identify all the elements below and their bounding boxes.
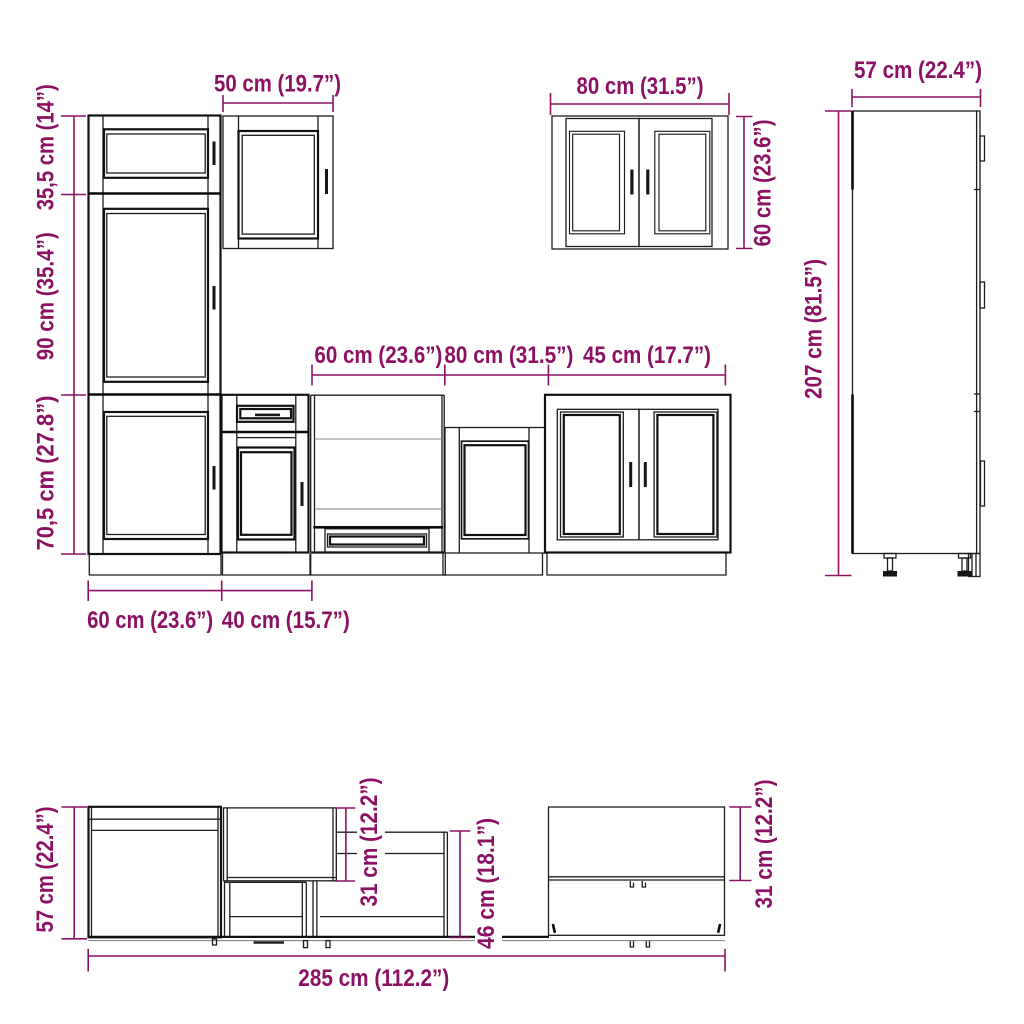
svg-text:31 cm (12.2”): 31 cm (12.2”) (751, 780, 778, 909)
svg-text:207 cm (81.5”): 207 cm (81.5”) (801, 259, 828, 399)
svg-text:50 cm (19.7”): 50 cm (19.7”) (214, 71, 341, 98)
svg-text:46 cm (18.1”): 46 cm (18.1”) (473, 818, 500, 949)
svg-text:40 cm (15.7”): 40 cm (15.7”) (222, 607, 350, 634)
svg-text:60 cm (23.6”): 60 cm (23.6”) (750, 120, 777, 247)
svg-text:57 cm (22.4”): 57 cm (22.4”) (854, 57, 982, 84)
svg-text:35,5 cm (14”): 35,5 cm (14”) (33, 84, 60, 210)
svg-text:57 cm (22.4”): 57 cm (22.4”) (32, 807, 59, 933)
svg-text:80 cm (31.5”): 80 cm (31.5”) (444, 342, 573, 369)
svg-text:60 cm (23.6”): 60 cm (23.6”) (314, 342, 442, 369)
svg-text:31 cm (12.2”): 31 cm (12.2”) (356, 778, 383, 907)
svg-text:60 cm (23.6”): 60 cm (23.6”) (87, 607, 213, 634)
svg-text:80 cm (31.5”): 80 cm (31.5”) (577, 73, 704, 100)
svg-text:70,5 cm (27.8”): 70,5 cm (27.8”) (33, 396, 60, 551)
svg-text:45 cm (17.7”): 45 cm (17.7”) (583, 342, 711, 369)
svg-text:285 cm (112.2”): 285 cm (112.2”) (298, 965, 449, 992)
svg-text:90 cm (35.4”): 90 cm (35.4”) (33, 232, 60, 360)
